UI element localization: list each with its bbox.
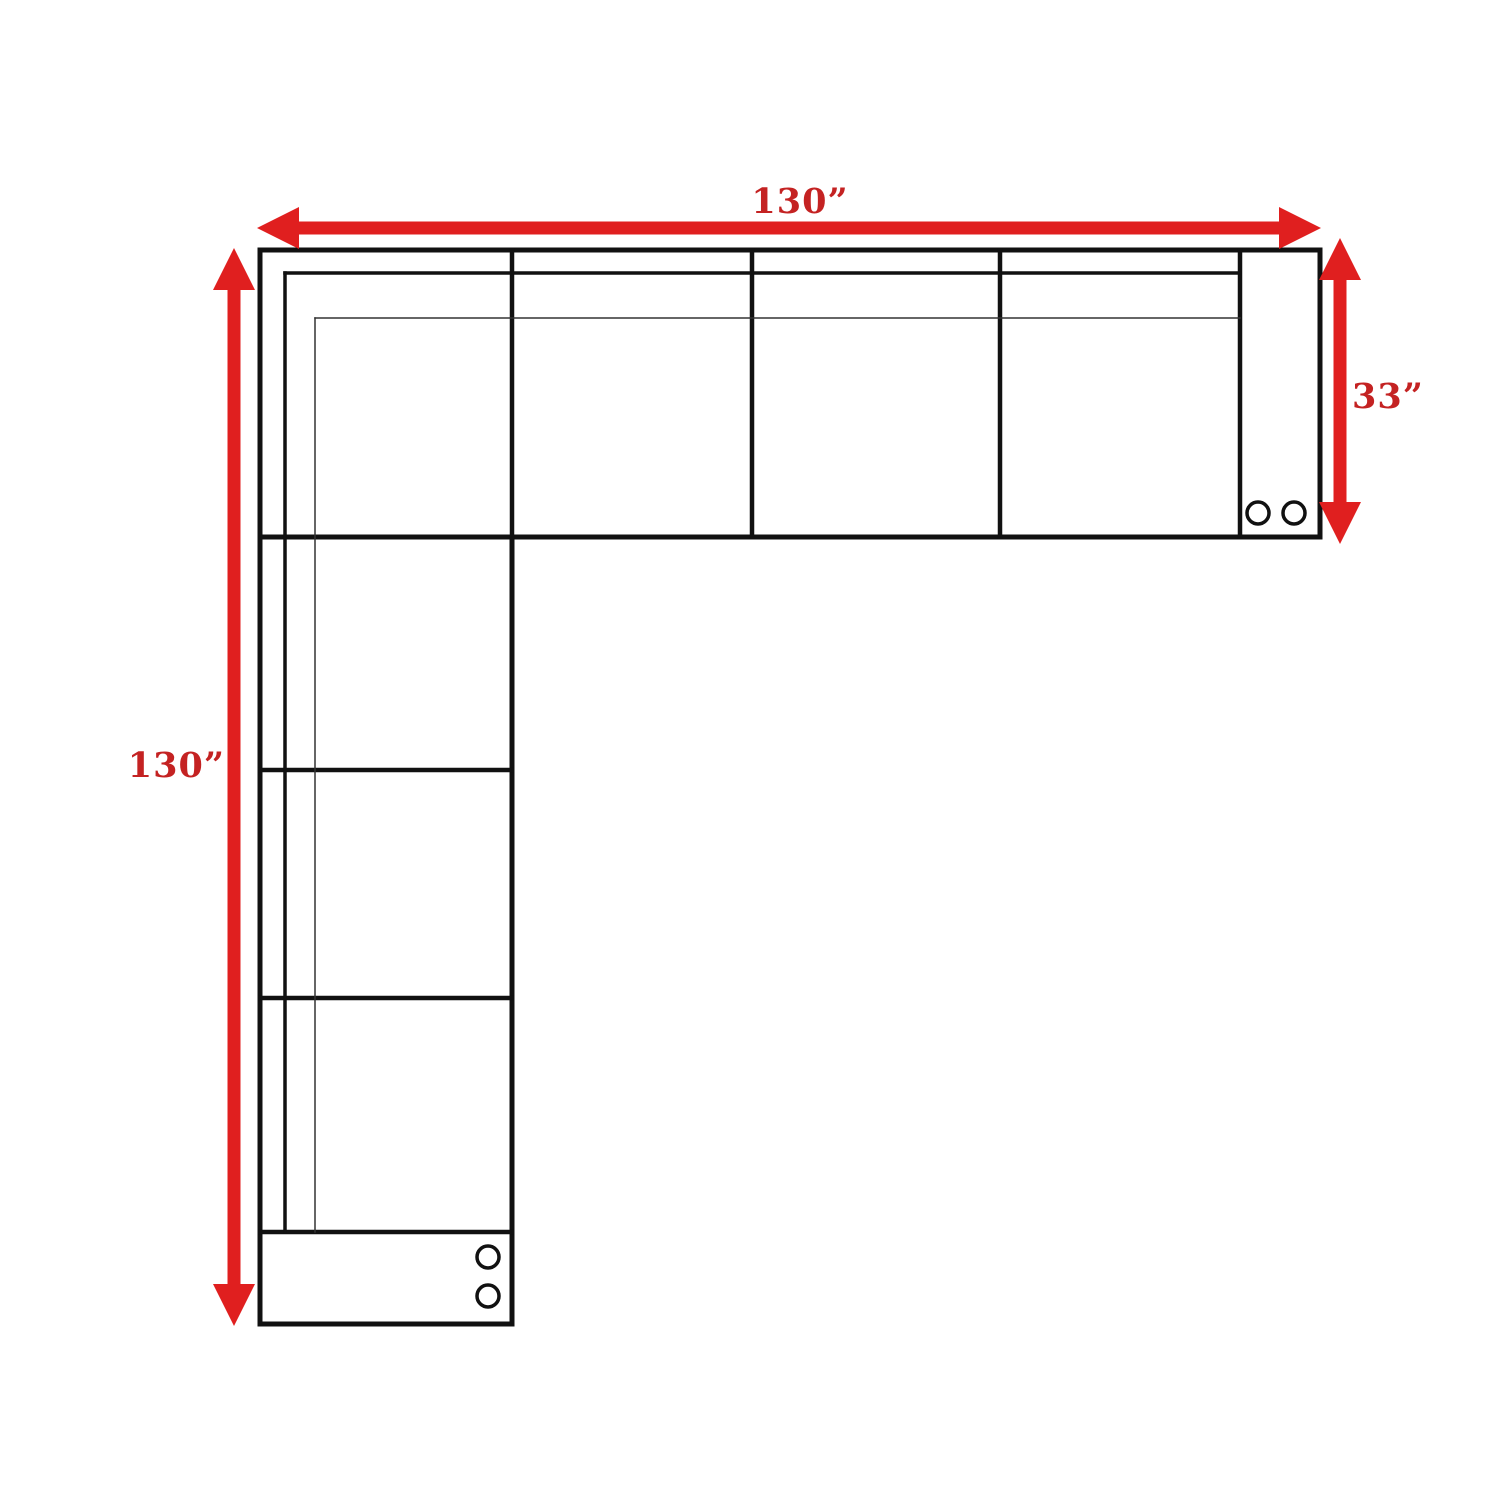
left-arrow-top-head [213, 248, 255, 290]
top-arrow-right-head [1279, 207, 1321, 249]
backrest-lines [285, 273, 1240, 1232]
sofa-outline [260, 250, 1320, 1324]
backrest-thin-lines [315, 318, 1240, 1232]
dimension-label-left: 130” [100, 748, 225, 783]
caster-circles [477, 502, 1305, 1307]
top-arrow-left-head [257, 207, 299, 249]
seat-dividers [260, 250, 1240, 1232]
sofa-floorplan-svg [0, 0, 1500, 1500]
caster-right-armrest-2 [1283, 502, 1305, 524]
left-dimension-arrow [213, 248, 255, 1326]
right-arrow-top-head [1319, 238, 1361, 280]
caster-bottom-armrest-2 [477, 1285, 499, 1307]
dimension-label-right: 33” [1352, 379, 1424, 414]
caster-right-armrest-1 [1247, 502, 1269, 524]
left-arrow-bottom-head [213, 1284, 255, 1326]
right-arrow-bottom-head [1319, 502, 1361, 544]
dimension-label-top: 130” [700, 184, 900, 219]
caster-bottom-armrest-1 [477, 1246, 499, 1268]
sectional-dimension-diagram: 130” 130” 33” [0, 0, 1500, 1500]
